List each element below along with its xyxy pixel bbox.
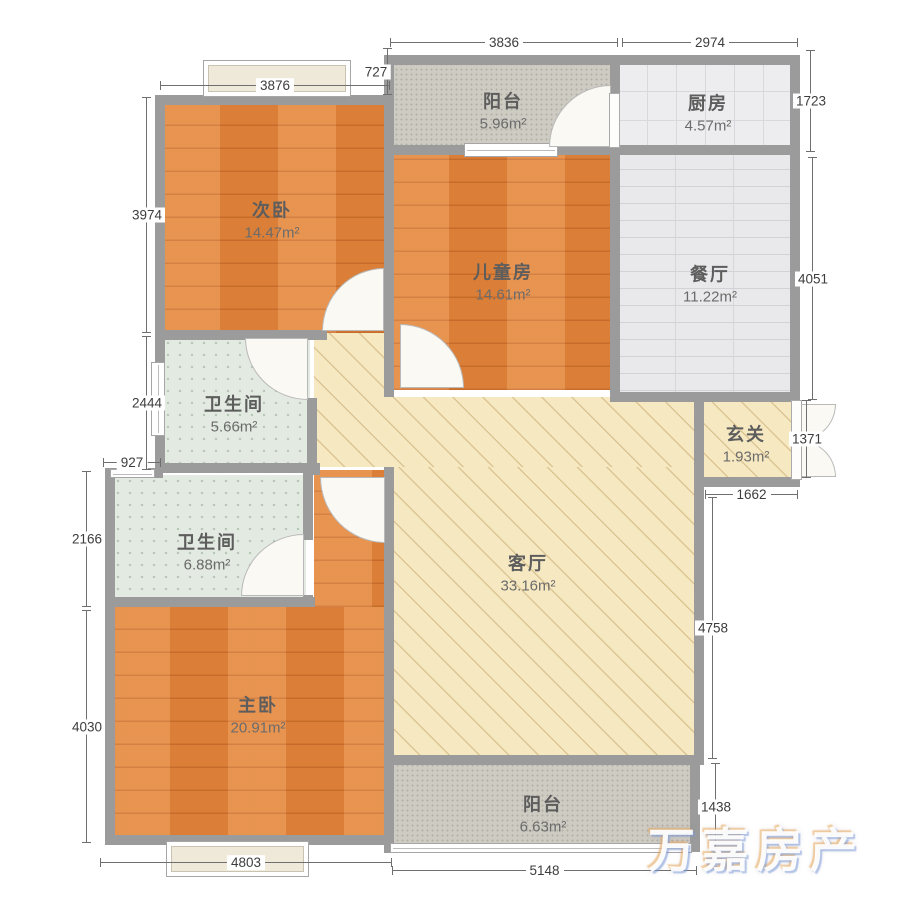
room-area: 1.93m²	[723, 449, 770, 466]
dimension-master-width: 4803	[100, 862, 392, 863]
room-label-dining: 餐厅 11.22m²	[683, 261, 737, 306]
dimension-bedroom2-offset: 727	[387, 48, 388, 95]
dimension-label: 1371	[789, 432, 825, 447]
dimension-bedroom2-width: 3876	[160, 85, 390, 86]
wall-bath-divider	[155, 463, 320, 473]
dimension-label: 2974	[691, 35, 729, 50]
room-area: 4.57m²	[685, 118, 732, 135]
room-area: 14.47m²	[244, 225, 299, 242]
room-label-bedroom2: 次卧 14.47m²	[244, 197, 299, 242]
room-area: 11.22m²	[683, 289, 737, 306]
dimension-label: 4051	[795, 271, 831, 286]
dimension-label: 2444	[129, 396, 165, 411]
room-name: 客厅	[500, 550, 555, 576]
wall-foyer-bottom	[694, 477, 800, 487]
dimension-label: 3974	[129, 208, 165, 223]
dimension-label: 3876	[256, 78, 294, 93]
room-name: 厨房	[685, 90, 732, 116]
dimension-dining-height: 4051	[812, 157, 813, 400]
room-name: 玄关	[723, 421, 770, 447]
room-area: 6.88m²	[177, 557, 237, 574]
wall-master-top	[105, 597, 315, 607]
wall-bath1-right-b	[307, 398, 317, 473]
floor-living-upper	[314, 397, 694, 467]
room-name: 餐厅	[683, 261, 737, 287]
room-area: 5.66m²	[204, 419, 264, 436]
window-bath2-left	[110, 469, 155, 478]
dimension-bedroom2-height: 3974	[146, 97, 147, 333]
dimension-label: 727	[362, 64, 391, 79]
dimension-kitchen-height: 1723	[810, 50, 811, 152]
dimension-label: 1723	[793, 94, 829, 109]
window-kids-balcony	[464, 143, 558, 157]
room-area: 33.16m²	[500, 578, 555, 595]
room-label-master: 主卧 20.91m²	[230, 692, 285, 737]
dimension-master-height: 4030	[86, 610, 87, 843]
room-label-kitchen: 厨房 4.57m²	[685, 90, 732, 135]
room-area: 6.63m²	[520, 819, 567, 836]
floor-living-main	[391, 467, 694, 757]
dimension-label: 1662	[732, 487, 770, 502]
wall-center-vertical-upper	[384, 55, 394, 397]
room-label-bath1: 卫生间 5.66m²	[204, 391, 264, 436]
wall-center-vertical-lower	[384, 467, 394, 852]
room-label-balcony-top: 阳台 5.96m²	[480, 88, 527, 133]
room-name: 卫生间	[177, 529, 237, 555]
room-name: 阳台	[520, 791, 567, 817]
dimension-label: 2166	[69, 532, 105, 547]
wall-bath1-right-a	[307, 330, 317, 340]
dimension-label: 5148	[525, 863, 563, 878]
wall-top-outer	[384, 55, 800, 65]
wall-kitchen-left-b	[610, 147, 620, 397]
room-area: 5.96m²	[480, 116, 527, 133]
watermark: 万嘉房产	[648, 812, 864, 881]
dimension-foyer-width: 1662	[705, 494, 798, 495]
dimension-top-kitchen: 2974	[622, 42, 798, 43]
room-label-foyer: 玄关 1.93m²	[723, 421, 770, 466]
dimension-bath1-height: 2444	[146, 336, 147, 470]
wall-balcony-top-bottom-a	[384, 145, 466, 155]
room-label-balcony-bottom: 阳台 6.63m²	[520, 791, 567, 836]
room-name: 卫生间	[204, 391, 264, 417]
dimension-label: 4803	[227, 855, 265, 870]
wall-dining-bottom	[610, 392, 800, 402]
wall-bath2-right-a	[303, 473, 313, 540]
dimension-foyer-height: 1371	[806, 400, 807, 478]
dimension-bath2-height: 2166	[86, 471, 87, 607]
window-balcony-bottom-glass	[390, 843, 692, 853]
dimension-living-height: 4758	[712, 497, 713, 759]
room-area: 14.61m²	[473, 287, 533, 304]
room-area: 20.91m²	[230, 720, 285, 737]
room-name: 儿童房	[473, 259, 533, 285]
room-name: 次卧	[244, 197, 299, 223]
dimension-label: 3836	[485, 35, 523, 50]
wall-balcony-bottom-top	[384, 755, 704, 765]
wall-left-lower	[105, 468, 115, 845]
door-leaf-balcony-kitchen	[609, 93, 620, 148]
dimension-top-balcony: 3836	[390, 42, 618, 43]
floor-plan: 阳台 5.96m² 厨房 4.57m² 次卧 14.47m² 儿童房 14.61…	[0, 0, 900, 900]
dimension-label: 4030	[69, 719, 105, 734]
room-label-kids-room: 儿童房 14.61m²	[473, 259, 533, 304]
room-name: 阳台	[480, 88, 527, 114]
room-label-bath2: 卫生间 6.88m²	[177, 529, 237, 574]
room-name: 主卧	[230, 692, 285, 718]
wall-foyer-left	[694, 392, 704, 487]
dimension-label: 4758	[695, 621, 731, 636]
dimension-label: 927	[117, 455, 148, 470]
dimension-bath2-offset: 927	[103, 462, 161, 463]
wall-kitchen-left-a	[610, 55, 620, 95]
room-label-living: 客厅 33.16m²	[500, 550, 555, 595]
